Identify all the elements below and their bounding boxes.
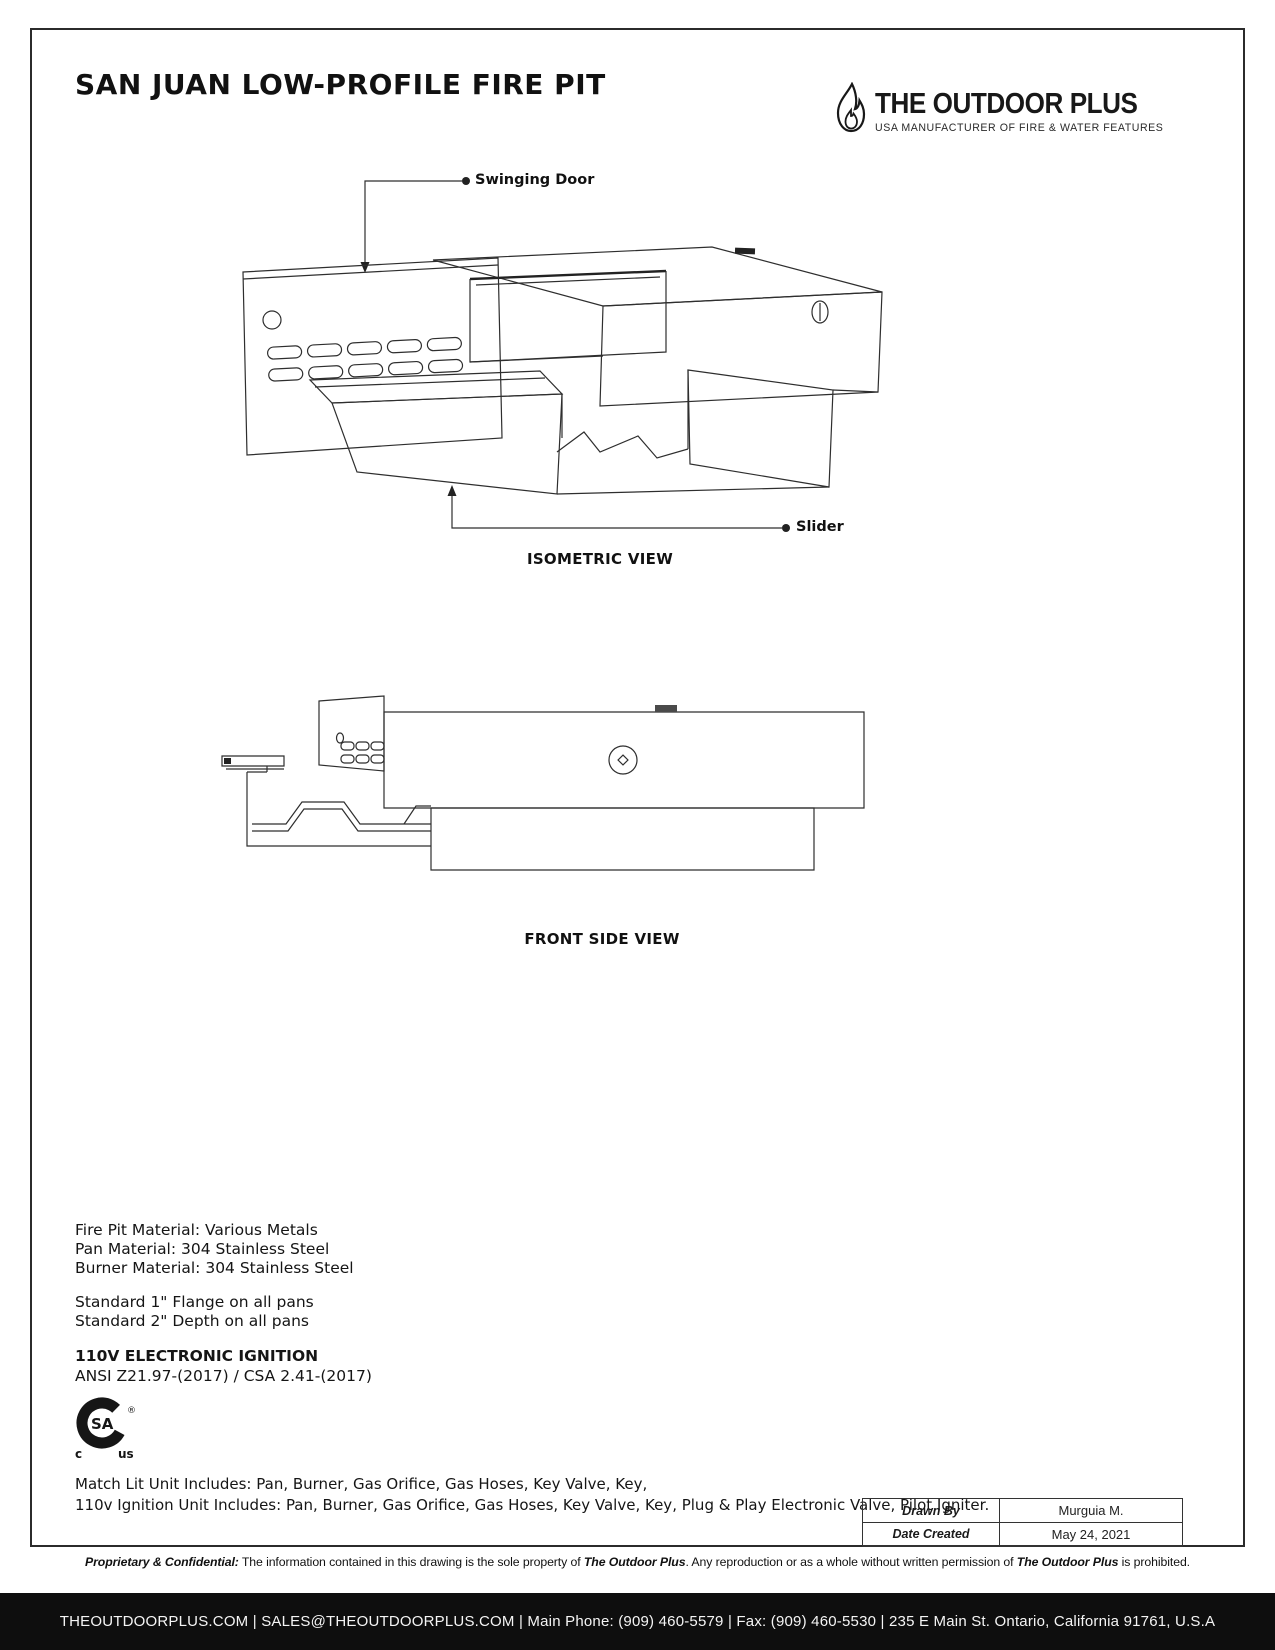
material-spec-line: Burner Material: 304 Stainless Steel [75,1259,354,1279]
lid-tab [735,248,755,255]
material-spec-line: Fire Pit Material: Various Metals [75,1221,318,1241]
swinging-door-panel [243,258,502,455]
brand-mention: The Outdoor Plus [1017,1555,1119,1569]
csa-reg-mark: ® [127,1406,136,1416]
callout-swinging-door: Swinging Door [475,172,594,188]
leader-dot-swinging-door [462,177,470,185]
front-side-view-drawing [200,670,880,880]
csa-certification-mark: SA ® c us [72,1396,142,1462]
proprietary-text: . Any reproduction or as a whole without… [685,1555,1016,1569]
drawn-by-value: Murguia M. [1000,1499,1182,1522]
standard-spec-line: Standard 2" Depth on all pans [75,1312,309,1332]
certification-line: ANSI Z21.97-(2017) / CSA 2.41-(2017) [75,1367,372,1387]
brand-tagline: USA MANUFACTURER OF FIRE & WATER FEATURE… [875,122,1163,134]
callout-slider: Slider [796,519,844,535]
brand-name: THE OUTDOOR PLUS [875,88,1138,121]
slider-drawer-front [332,394,562,494]
date-created-label: Date Created [863,1523,1000,1545]
proprietary-label: Proprietary & Confidential: [85,1555,239,1569]
flame-icon [833,82,869,134]
contact-info: THEOUTDOORPLUS.COM | SALES@THEOUTDOORPLU… [60,1613,1215,1630]
front-lid-tab [655,705,677,712]
isometric-view-drawing [230,160,920,580]
proprietary-text: is prohibited. [1118,1555,1190,1569]
table-row: Drawn By Murguia M. [863,1499,1182,1522]
slider-handle [222,756,284,766]
date-created-value: May 24, 2021 [1000,1523,1182,1545]
csa-sa-text: SA [91,1415,114,1433]
front-vent-slots [341,742,384,763]
contact-bar: THEOUTDOORPLUS.COM | SALES@THEOUTDOORPLU… [0,1593,1275,1650]
includes-line: 110v Ignition Unit Includes: Pan, Burner… [75,1496,989,1516]
front-base [431,808,814,870]
front-door-panel [319,696,384,771]
key-valve [609,746,637,774]
slider-drawer-lip [310,371,562,403]
proprietary-text: The information contained in this drawin… [239,1555,584,1569]
csa-c-text: c [75,1447,82,1461]
ignition-title: 110V ELECTRONIC IGNITION [75,1347,318,1367]
brand-logo: THE OUTDOOR PLUS USA MANUFACTURER OF FIR… [833,82,1163,134]
leader-dot-slider [782,524,790,532]
standard-spec-line: Standard 1" Flange on all pans [75,1293,314,1313]
includes-line: Match Lit Unit Includes: Pan, Burner, Ga… [75,1475,647,1495]
title-block-table: Drawn By Murguia M. Date Created May 24,… [862,1498,1183,1547]
page-title: SAN JUAN LOW-PROFILE FIRE PIT [75,68,606,101]
front-side-view-caption: FRONT SIDE VIEW [482,930,722,948]
spec-sheet-page: SAN JUAN LOW-PROFILE FIRE PIT THE OUTDOO… [0,0,1275,1650]
brand-mention: The Outdoor Plus [584,1555,686,1569]
drawn-by-label: Drawn By [863,1499,1000,1522]
front-body [384,712,864,808]
door-hole [263,311,281,329]
table-row: Date Created May 24, 2021 [863,1522,1182,1545]
isometric-view-caption: ISOMETRIC VIEW [480,550,720,568]
material-spec-line: Pan Material: 304 Stainless Steel [75,1240,329,1260]
proprietary-note: Proprietary & Confidential: The informat… [40,1555,1235,1569]
csa-us-text: us [118,1447,134,1461]
